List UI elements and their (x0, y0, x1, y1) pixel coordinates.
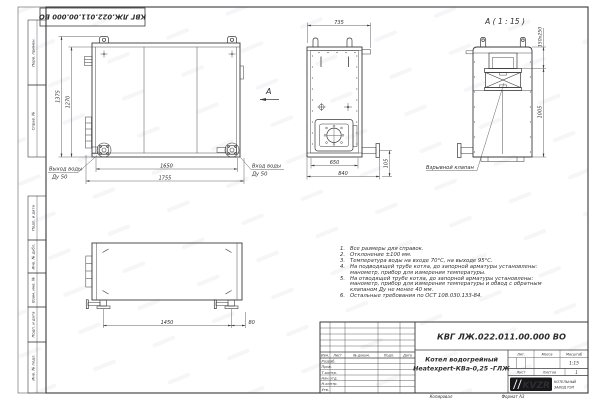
col-ndokum: № докум. (352, 353, 370, 357)
dim-1650: 1650 (160, 163, 173, 169)
margin-label-perv-primen: Перв. примен. (31, 38, 36, 67)
note-item: 5.На отводящей трубе котла, до запорной … (340, 277, 542, 295)
inlet-label: Вход воды (252, 164, 281, 170)
format-label: Формат А3 (502, 394, 525, 399)
sheet-label: Лист (515, 371, 526, 375)
logo-caption-2: ЗАВОД РЭП (554, 385, 575, 389)
dim-1375: 1375 (56, 90, 62, 103)
row-tkontr: Т.контр. (322, 371, 338, 375)
col-data: Дата (402, 353, 412, 357)
detail-title: А ( 1 : 15 ) (484, 17, 525, 26)
margin-label-podp-data-2: Подп. и дата (31, 311, 36, 338)
note-item: 6.Остальные требования по ОСТ 108.030.13… (340, 294, 542, 300)
scale-value: 1:15 (569, 361, 579, 367)
dim-1270: 1270 (66, 96, 72, 109)
outlet-dn-label: Ду 50 (51, 175, 68, 181)
drawing-sheet: КВГ ЛЖ.022.011.00.000 ВО Перв. примен. С… (0, 0, 600, 400)
note-text: На подводящей трубе котла, до запорной а… (350, 265, 542, 277)
col-izm: Изм. (321, 353, 329, 357)
drawing-canvas: КВГ ЛЖ.022.011.00.000 ВО Перв. примен. С… (0, 0, 600, 400)
dim-735: 735 (334, 20, 344, 26)
product-name-1: Котел водогрейный (425, 357, 498, 364)
row-razrab: Разраб. (322, 360, 336, 364)
kopiroval-label: Копировал (430, 394, 453, 399)
margin-label-podp-data-1: Подп. и дата (31, 204, 36, 231)
footer: Копировал Формат А3 (430, 394, 525, 399)
logo-caption-1: КОТЕЛЬНЫЙ (554, 379, 576, 384)
product-name-2: Heatexpert-КВа-0,25 -ГЛЖ (413, 365, 510, 373)
view-direction-letter: А (265, 87, 271, 96)
sheets-value: 1 (575, 370, 578, 375)
margin-label-vzam-inv: Взам. инв. № (31, 277, 36, 303)
note-text: Остальные требования по ОСТ 108.030.133-… (350, 294, 542, 300)
sheets-label: Листов (542, 371, 556, 375)
dim-1005: 1005 (538, 106, 544, 119)
dim-840: 840 (338, 171, 348, 177)
dim-650: 650 (330, 160, 340, 166)
note-number: 5. (340, 277, 350, 295)
inlet-dn-label: Ду 50 (251, 172, 268, 178)
row-prov: Пров. (322, 365, 332, 369)
explosion-valve-label: Взрывной клапан (426, 165, 475, 171)
scale-label: Масштаб (566, 352, 582, 356)
note-number: 4. (340, 265, 350, 277)
dim-150x250: 150x250 (538, 27, 544, 47)
col-podp: Подп. (384, 353, 394, 357)
note-text: На отводящей трубе котла, до запорной ар… (350, 277, 542, 295)
col-list: Лист (332, 353, 343, 357)
margin-label-inv-podl: Инв. № подл. (31, 354, 36, 380)
note-item: 4.На подводящей трубе котла, до запорной… (340, 265, 542, 277)
doc-number: КВГ ЛЖ.022.011.00.000 ВО (437, 332, 566, 342)
margin-label-inv-dubl: Инв. № дубл. (31, 244, 36, 270)
row-utv: Утв. (322, 388, 330, 392)
note-number: 6. (340, 294, 350, 300)
stamp-top: КВГ ЛЖ.022.011.00.000 ВО (39, 13, 146, 21)
margin-label-sprav-no: Справ. № (31, 112, 36, 131)
dim-80: 80 (249, 320, 255, 326)
lit-label: Лит. (516, 352, 525, 356)
row-nkontr: Н.контр. (322, 382, 338, 386)
mass-label: Масса (542, 352, 553, 356)
dim-105: 105 (384, 159, 390, 169)
outlet-label: Выход воды (49, 167, 82, 173)
logo-text: KVZR (523, 381, 550, 391)
notes-list: 1.Все размеры для справок. 2.Отклонение … (340, 247, 542, 300)
dim-1450: 1450 (161, 320, 174, 326)
row-nachotd: Нач.отд. (322, 377, 338, 381)
dim-1755: 1755 (159, 175, 172, 181)
